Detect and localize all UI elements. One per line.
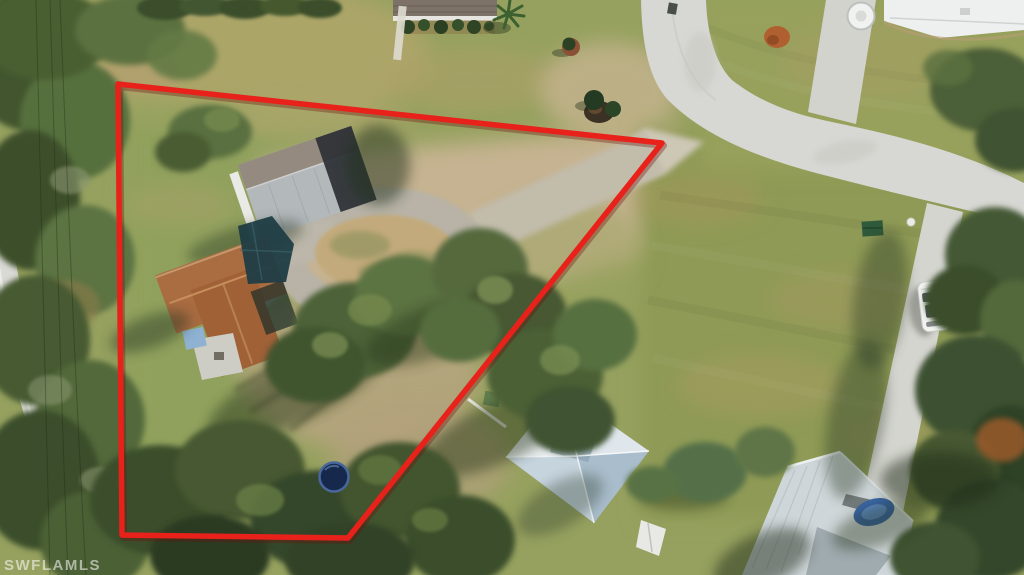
- aerial-photo-canvas: SWFLAMLS: [0, 0, 1024, 575]
- aerial-property-photo: SWFLAMLS: [0, 0, 1024, 575]
- hedge-north: [137, 0, 342, 20]
- watermark: SWFLAMLS: [4, 557, 101, 574]
